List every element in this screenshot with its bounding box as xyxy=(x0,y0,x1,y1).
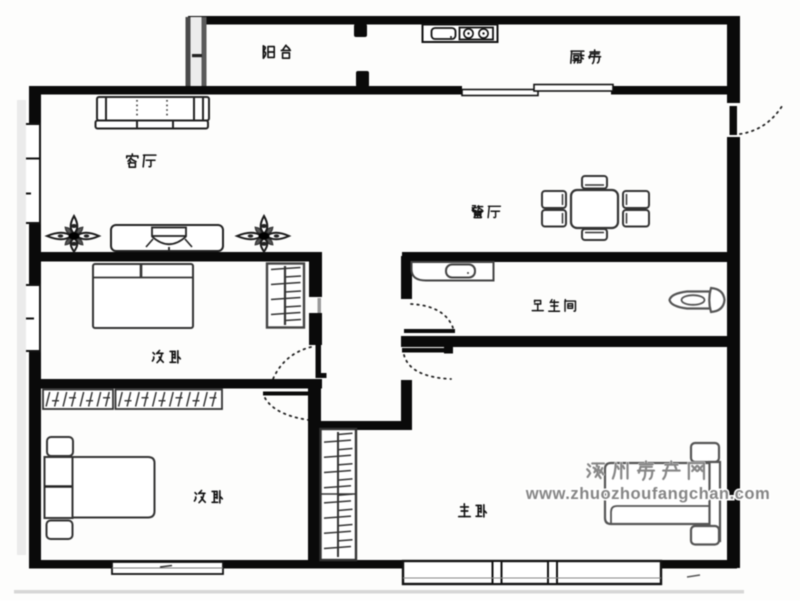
svg-text:www.zhuozhoufangchan.com: www.zhuozhoufangchan.com xyxy=(525,484,771,503)
